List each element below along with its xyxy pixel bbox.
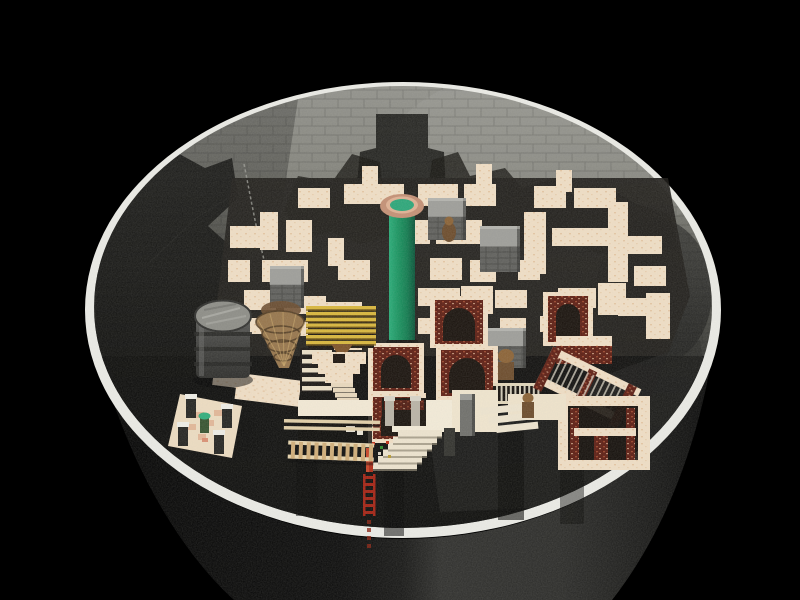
- film-grain: [0, 0, 800, 600]
- raytraced-scene: [0, 0, 800, 600]
- render-svg: [0, 0, 800, 600]
